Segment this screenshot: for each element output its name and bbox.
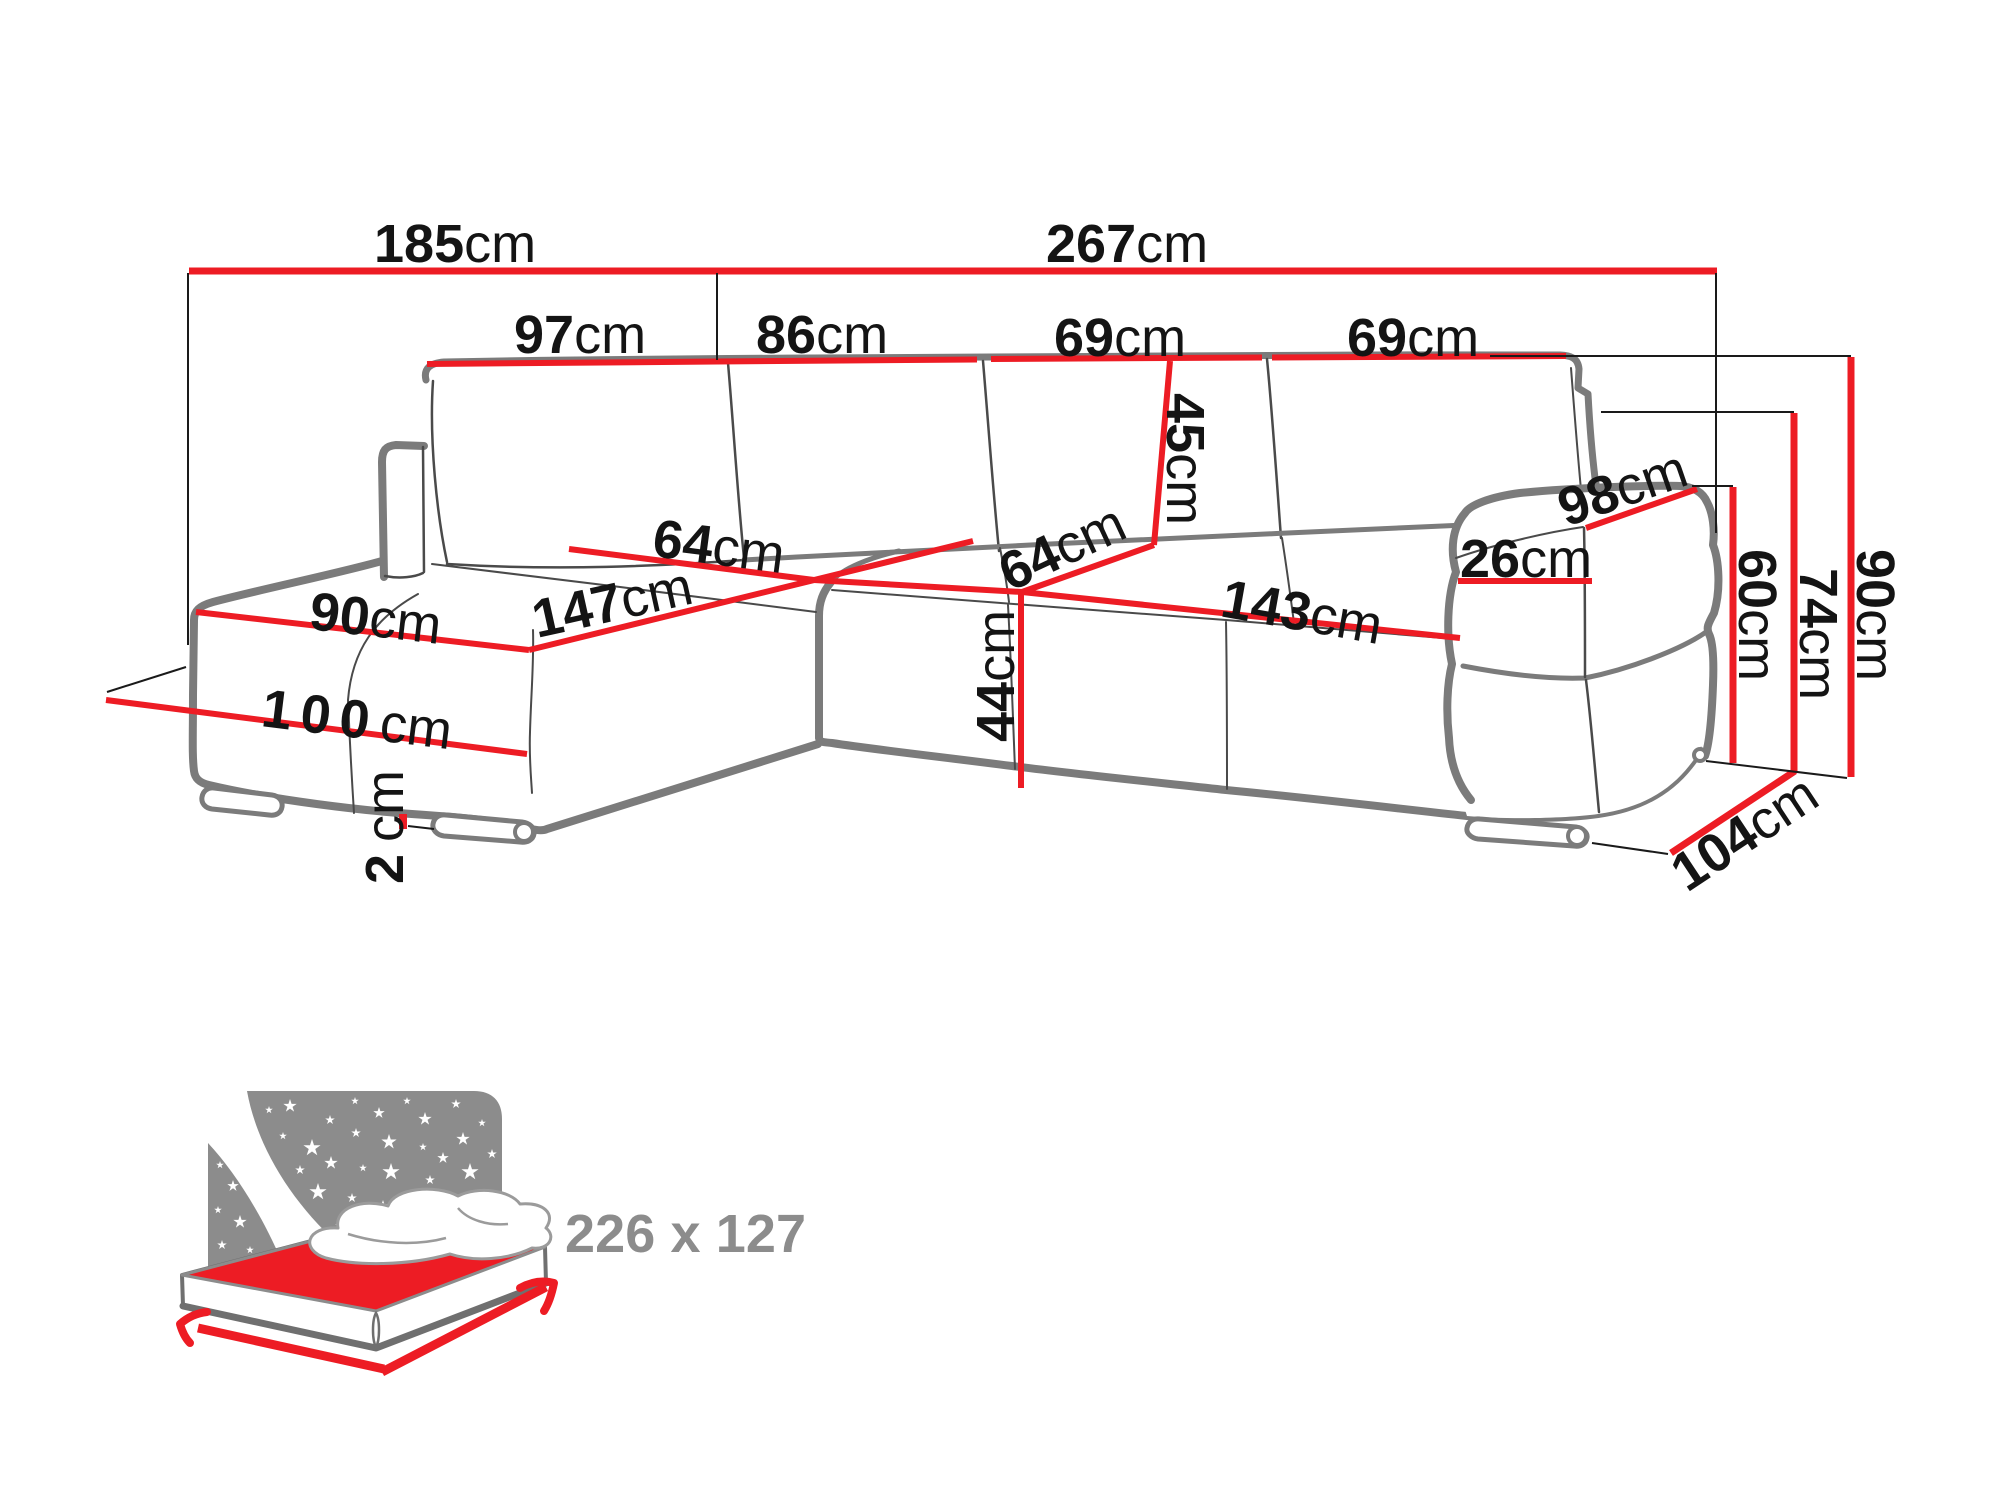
svg-text:226 x 127: 226 x 127	[565, 1204, 806, 1264]
svg-text:60cm: 60cm	[1727, 549, 1787, 681]
svg-text:69cm: 69cm	[1347, 308, 1479, 368]
svg-text:74cm: 74cm	[1788, 568, 1848, 700]
svg-text:267cm: 267cm	[1046, 214, 1208, 274]
svg-text:69cm: 69cm	[1054, 308, 1186, 368]
svg-text:26cm: 26cm	[1460, 529, 1592, 589]
svg-text:90cm: 90cm	[1845, 549, 1905, 681]
svg-text:86cm: 86cm	[756, 305, 888, 365]
svg-text:44cm: 44cm	[966, 610, 1026, 742]
svg-text:45cm: 45cm	[1155, 393, 1215, 525]
svg-text:97cm: 97cm	[514, 305, 646, 365]
svg-text:2cm: 2cm	[355, 770, 415, 884]
svg-text:185cm: 185cm	[374, 214, 536, 274]
